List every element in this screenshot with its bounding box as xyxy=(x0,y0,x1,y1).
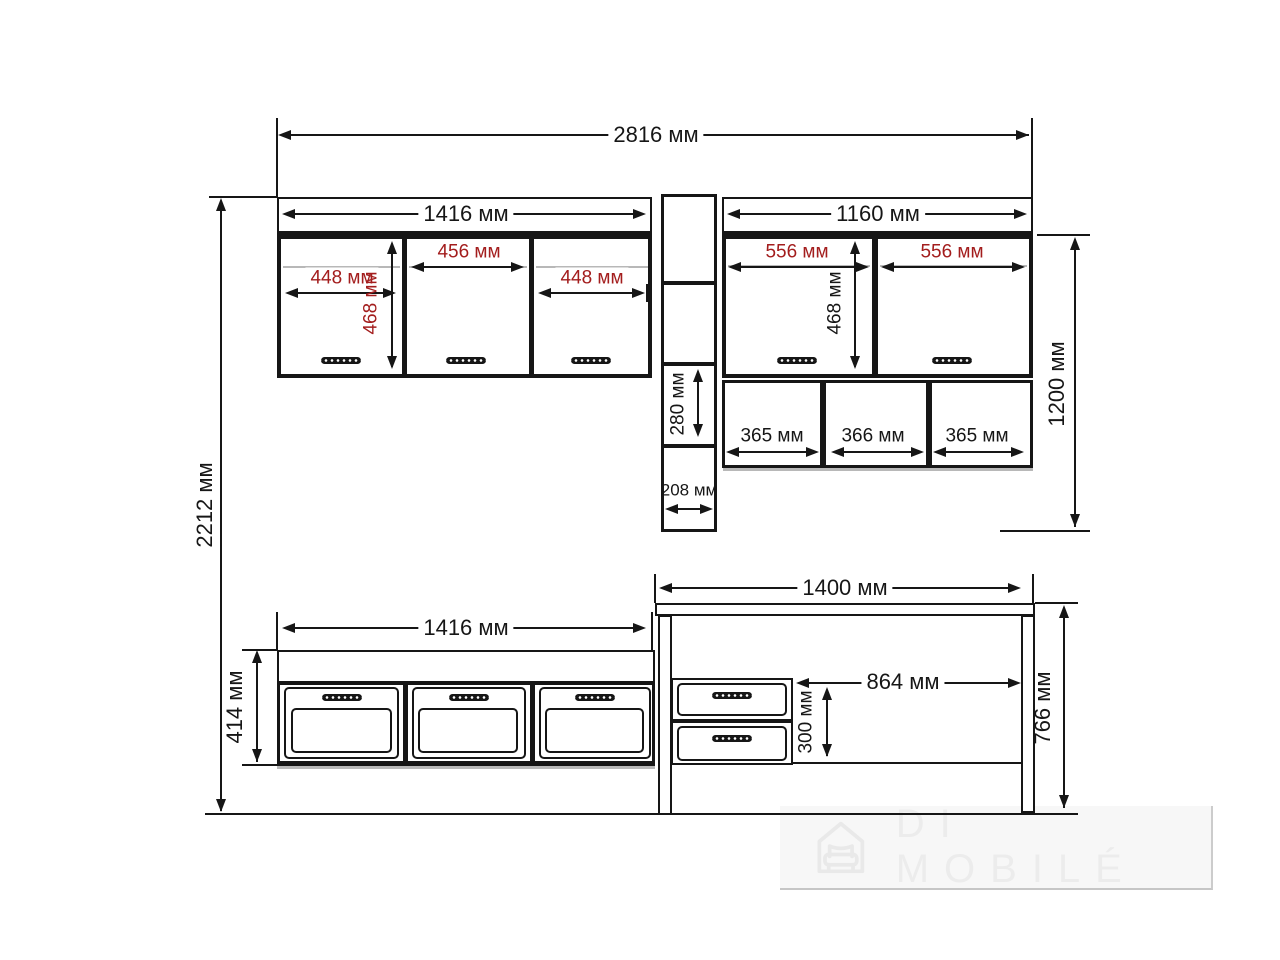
dim-desk-height: 766 мм xyxy=(1032,671,1054,744)
dim-line xyxy=(1063,608,1065,808)
arrowhead xyxy=(1012,262,1025,272)
arrowhead xyxy=(387,241,397,254)
arrowhead xyxy=(1011,447,1024,457)
cabinet-divider xyxy=(530,685,535,763)
dim-ext-line xyxy=(651,612,653,650)
arrowhead xyxy=(216,198,226,211)
dim-line xyxy=(731,451,811,453)
dim-ext-line xyxy=(1035,602,1078,604)
arrowhead xyxy=(252,749,262,762)
drawer-front xyxy=(677,683,787,716)
dim-right-stack-height: 1200 мм xyxy=(1046,341,1068,426)
dim-door-556-left: 556 мм xyxy=(760,242,833,263)
cabinet-divider xyxy=(872,239,878,374)
arrowhead xyxy=(411,262,424,272)
arrowhead xyxy=(1070,237,1080,250)
arrowhead xyxy=(659,583,672,593)
arrowhead xyxy=(632,288,645,298)
dim-shelf-366: 366 мм xyxy=(836,426,909,447)
arrowhead xyxy=(700,504,713,514)
dim-drawer-unit-height: 300 мм xyxy=(797,690,816,753)
arrowhead xyxy=(881,262,894,272)
cabinet-divider xyxy=(402,239,407,374)
door-handle xyxy=(777,357,817,364)
dim-column-width: 208 мм xyxy=(656,481,722,500)
dim-line xyxy=(885,266,1017,268)
watermark-brand: DI MOBILÉ xyxy=(896,802,1211,892)
dim-ext-line xyxy=(242,764,277,766)
dim-line xyxy=(938,451,1016,453)
drawer-front xyxy=(677,726,787,761)
arrowhead xyxy=(850,241,860,254)
dim-line xyxy=(733,266,863,268)
furniture-dimension-drawing: DI MOBILÉ 2816 мм 2212 мм 1416 мм 448 мм… xyxy=(0,0,1280,960)
arrowhead xyxy=(933,447,946,457)
door-handle xyxy=(932,357,972,364)
arrowhead xyxy=(252,650,262,663)
door-handle xyxy=(446,357,486,364)
drawer-handle xyxy=(712,692,752,699)
desk-top xyxy=(655,603,1035,616)
dim-shelf-365-left: 365 мм xyxy=(735,426,808,447)
column-shelf-board xyxy=(664,444,714,448)
arrowhead xyxy=(806,447,819,457)
dim-door-height-left: 468 мм xyxy=(362,271,381,334)
drawer-divider xyxy=(673,719,791,723)
drawer-panel xyxy=(418,708,518,753)
house-sofa-icon xyxy=(810,815,872,879)
door-handle xyxy=(321,357,361,364)
arrowhead xyxy=(831,447,844,457)
dim-door-556-right: 556 мм xyxy=(915,242,988,263)
dim-desk-width: 1400 мм xyxy=(797,576,892,600)
open-shelf-unit xyxy=(722,380,1033,468)
arrowhead xyxy=(1059,605,1069,618)
drawer-handle xyxy=(449,694,489,701)
dim-line xyxy=(1074,240,1076,527)
dim-line xyxy=(391,245,393,367)
arrowhead xyxy=(216,799,226,812)
arrowhead xyxy=(727,209,740,219)
arrowhead xyxy=(822,744,832,757)
arrowhead xyxy=(1016,130,1029,140)
arrowhead xyxy=(1008,583,1021,593)
dim-overall-height: 2212 мм xyxy=(194,462,216,547)
dim-line xyxy=(854,245,856,367)
dim-ext-line xyxy=(1032,574,1034,603)
arrowhead xyxy=(1014,209,1027,219)
floor-line xyxy=(205,813,1078,815)
arrowhead xyxy=(728,262,741,272)
arrowhead xyxy=(1070,514,1080,527)
cabinet-divider xyxy=(403,685,408,763)
dim-line xyxy=(415,266,515,268)
arrowhead xyxy=(538,288,551,298)
shelf-divider xyxy=(820,383,826,465)
dim-door-448-right: 448 мм xyxy=(555,268,628,289)
dim-ext-line xyxy=(1037,234,1090,236)
dim-desk-clearance: 864 мм xyxy=(861,670,944,694)
base-unit-top xyxy=(277,650,655,683)
dim-shelf-365-right: 365 мм xyxy=(940,426,1013,447)
drawer-panel xyxy=(291,708,392,753)
drawer-handle xyxy=(575,694,615,701)
watermark-panel: DI MOBILÉ xyxy=(780,806,1213,890)
arrowhead xyxy=(285,288,298,298)
dim-base-height: 414 мм xyxy=(224,670,246,743)
drawer-panel xyxy=(545,708,644,753)
dim-ext-line xyxy=(1031,118,1033,197)
cabinet-divider xyxy=(529,239,534,374)
arrowhead xyxy=(911,447,924,457)
dim-column-shelf-height: 280 мм xyxy=(669,372,688,435)
drawer-handle xyxy=(712,735,752,742)
arrowhead xyxy=(278,130,291,140)
dim-upper-left-width: 1416 мм xyxy=(418,202,513,226)
dim-line xyxy=(256,653,258,762)
shadow-line xyxy=(723,468,1033,471)
dim-ext-line xyxy=(1000,530,1090,532)
dim-door-height-right: 468 мм xyxy=(826,271,845,334)
dim-upper-right-width: 1160 мм xyxy=(831,202,925,226)
arrowhead xyxy=(693,369,703,382)
arrowhead xyxy=(282,623,295,633)
arrowhead xyxy=(511,262,524,272)
arrowhead xyxy=(796,678,809,688)
dim-tick xyxy=(646,284,648,302)
arrowhead xyxy=(387,356,397,369)
desk-leg-left xyxy=(658,615,672,815)
arrowhead xyxy=(726,447,739,457)
drawer-handle xyxy=(322,694,362,701)
arrowhead xyxy=(693,424,703,437)
dim-line xyxy=(836,451,916,453)
door-handle xyxy=(571,357,611,364)
arrowhead xyxy=(383,288,396,298)
arrowhead xyxy=(850,356,860,369)
column-shelf-board xyxy=(664,362,714,366)
dim-overall-width: 2816 мм xyxy=(608,123,703,147)
arrowhead xyxy=(1008,678,1021,688)
arrowhead xyxy=(282,209,295,219)
dim-base-width: 1416 мм xyxy=(418,616,513,640)
desk-stretcher-line xyxy=(793,762,1021,764)
dim-ext-line xyxy=(276,612,278,650)
arrowhead xyxy=(665,504,678,514)
arrowhead xyxy=(633,209,646,219)
arrowhead xyxy=(856,262,869,272)
shelf-divider xyxy=(926,383,932,465)
arrowhead xyxy=(822,687,832,700)
dim-door-456: 456 мм xyxy=(432,242,505,263)
arrowhead xyxy=(1059,795,1069,808)
column-shelf-board xyxy=(664,281,714,285)
dim-ext-line xyxy=(654,574,656,603)
arrowhead xyxy=(633,623,646,633)
shadow-line xyxy=(277,766,655,769)
dim-line xyxy=(542,292,639,294)
